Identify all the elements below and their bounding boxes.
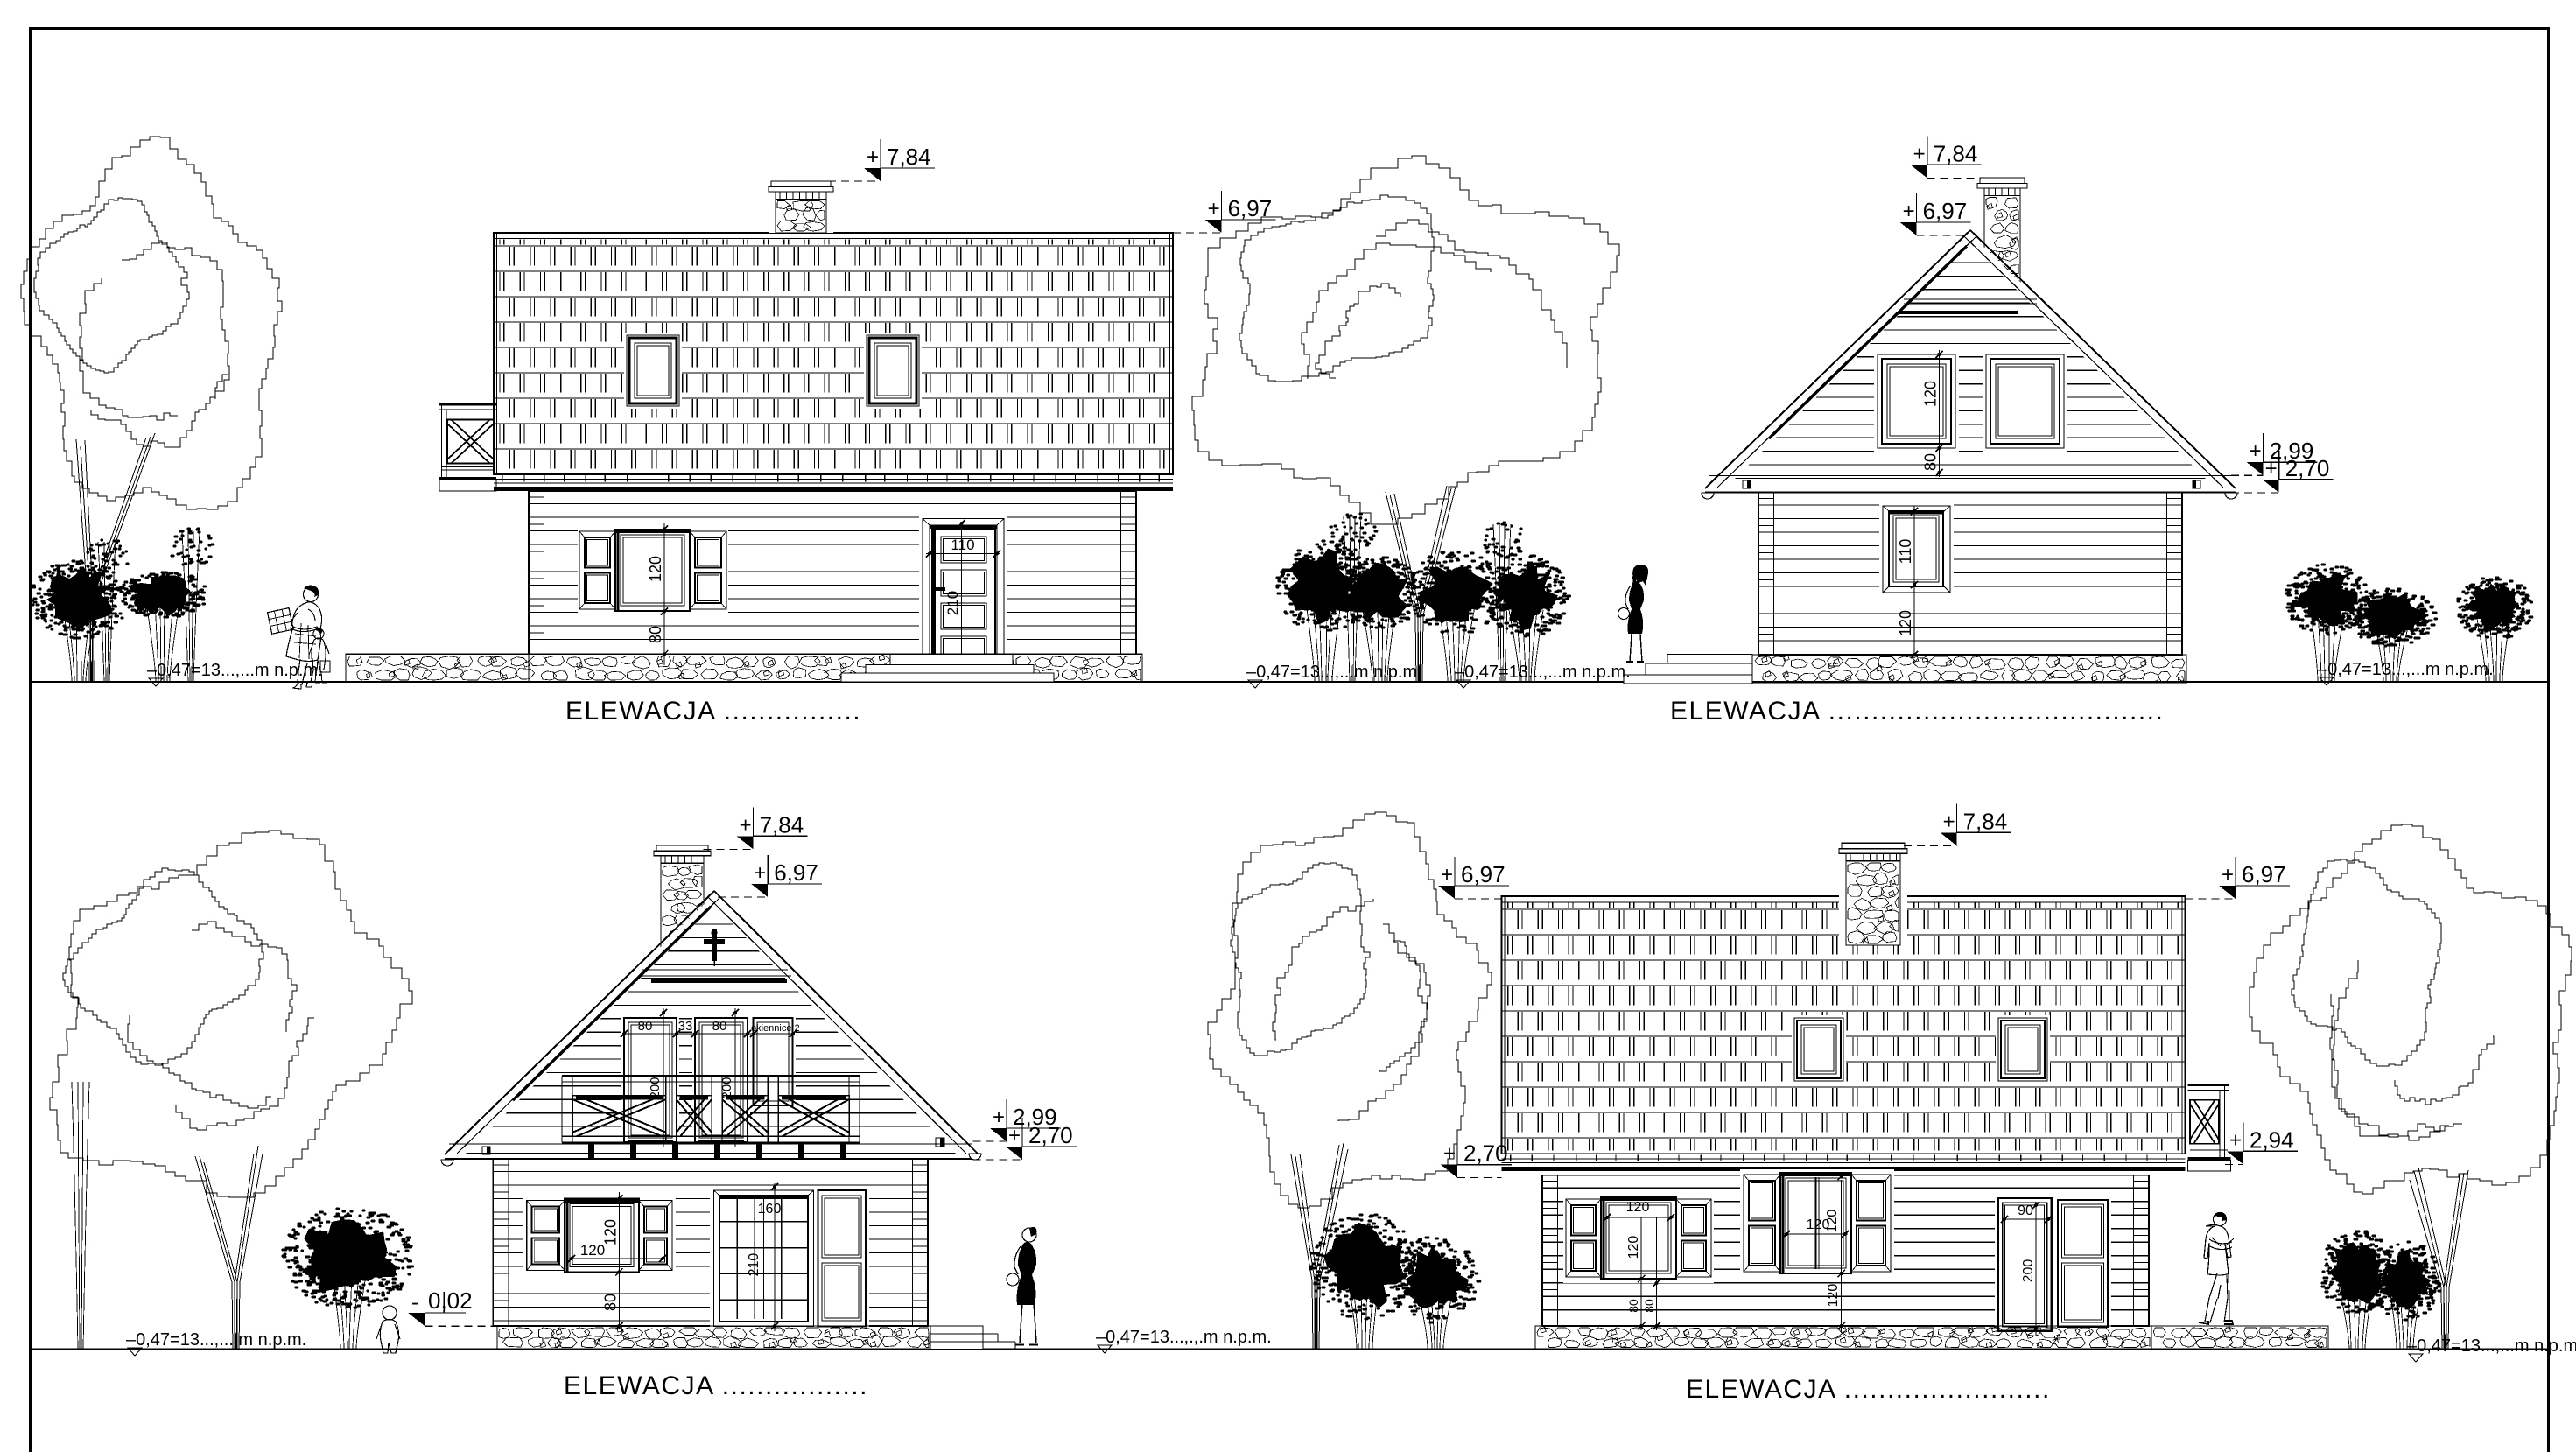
svg-text:2,70: 2,70 [1028,1122,1073,1148]
svg-text:80: 80 [1626,1299,1640,1313]
svg-text:120: 120 [1897,610,1914,636]
svg-text:210: 210 [944,591,961,615]
svg-text:+: + [993,1105,1005,1129]
svg-text:2,70: 2,70 [2285,455,2330,481]
svg-text:6,97: 6,97 [774,859,818,886]
svg-text:+: + [1441,863,1453,887]
svg-text:33: 33 [678,1019,693,1034]
svg-text:7,84: 7,84 [887,144,931,170]
svg-text:7,84: 7,84 [1963,808,2008,834]
svg-text:110: 110 [1897,539,1914,565]
svg-text:80: 80 [1642,1299,1656,1313]
svg-text:2,94: 2,94 [2250,1126,2294,1153]
svg-text:+: + [2250,439,2262,463]
svg-text:210: 210 [747,1253,762,1277]
svg-text:80: 80 [647,626,664,643]
svg-text:120: 120 [1826,1284,1841,1308]
svg-text:+: + [867,145,879,169]
svg-text:7,84: 7,84 [1934,140,1978,166]
svg-text:80: 80 [638,1019,653,1034]
svg-text:+: + [1208,197,1220,221]
svg-text:–0,47=13...,...m n.p.m.: –0,47=13...,...m n.p.m. [1455,663,1631,682]
svg-text:6,97: 6,97 [2242,861,2286,887]
svg-text:2,70: 2,70 [1463,1140,1508,1167]
svg-text:–0,47=13...,...m n.p.m.: –0,47=13...,...m n.p.m. [1246,663,1422,682]
svg-text:ELEWACJA ................: ELEWACJA ................ [565,697,861,726]
svg-text:7,84: 7,84 [760,811,804,838]
svg-text:ELEWACJA ....................: ELEWACJA ........................ [1686,1375,2051,1404]
svg-text:80: 80 [601,1294,619,1311]
svg-text:+: + [1903,200,1915,223]
svg-text:–0,47=13...,...m n.p.m.: –0,47=13...,...m n.p.m. [147,661,323,680]
svg-text:160: 160 [758,1202,782,1217]
svg-text:120: 120 [1626,1200,1650,1215]
svg-text:0,02: 0,02 [428,1287,473,1314]
svg-text:+: + [1943,810,1955,833]
svg-text:120: 120 [1807,1217,1830,1232]
svg-text:+: + [754,861,766,885]
svg-text:–0,47=13...,.,.m n.p.m.: –0,47=13...,.,.m n.p.m. [1096,1328,1272,1347]
svg-text:120: 120 [1626,1236,1641,1259]
svg-text:ELEWACJA .................: ELEWACJA ................. [564,1371,868,1400]
svg-text:90: 90 [2018,1203,2033,1218]
svg-text:120: 120 [1921,381,1939,407]
svg-text:+: + [1913,142,1926,165]
svg-text:120: 120 [580,1242,605,1259]
svg-text:–0,47=13...,...m n.p.m.: –0,47=13...,...m n.p.m. [2407,1336,2576,1356]
svg-text:200: 200 [2021,1259,2036,1283]
svg-text:120: 120 [647,556,664,582]
svg-text:6,97: 6,97 [1923,198,1968,224]
svg-text:6,97: 6,97 [1461,861,1506,887]
svg-text:ELEWACJA ....................: ELEWACJA ...............................… [1670,697,2164,726]
svg-text:+: + [2222,863,2234,887]
svg-text:+: + [2229,1128,2242,1152]
svg-text:80: 80 [712,1019,727,1034]
svg-text:okiennice:2: okiennice:2 [751,1023,800,1034]
svg-text:+: + [740,813,752,837]
svg-text:110: 110 [951,537,974,553]
svg-text:-: - [411,1291,418,1315]
svg-text:80: 80 [1921,453,1939,471]
svg-text:–0,47=13...,...m n.p.m.: –0,47=13...,...m n.p.m. [2318,660,2494,679]
svg-text:+: + [1008,1124,1021,1147]
svg-text:+: + [2265,457,2278,480]
svg-text:–0,47=13...,....m n.p.m.: –0,47=13...,....m n.p.m. [126,1330,306,1350]
